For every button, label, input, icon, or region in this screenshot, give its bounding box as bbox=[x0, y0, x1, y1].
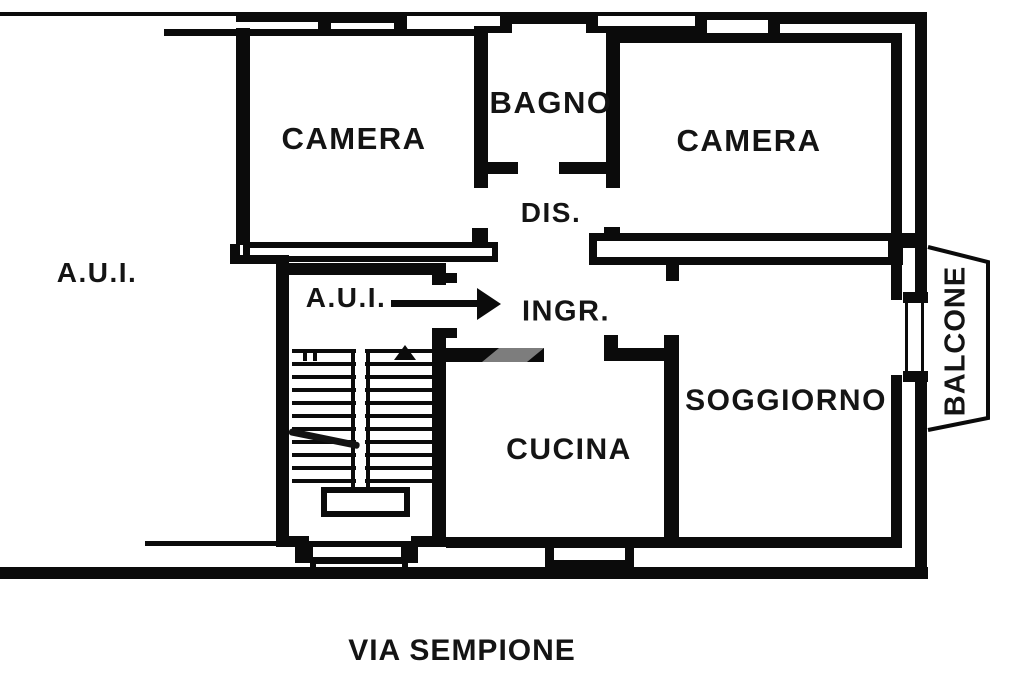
window-bagno bbox=[500, 16, 598, 24]
wall-top-seg bbox=[590, 26, 698, 33]
wall-stair-landing-north bbox=[276, 263, 446, 275]
wall-ingresso-west bbox=[432, 328, 446, 543]
wall-top-thick-left bbox=[236, 12, 330, 22]
room-label-ingresso: INGR. bbox=[522, 296, 610, 329]
wall-stair-west bbox=[276, 255, 289, 543]
room-label-cucina: CUCINA bbox=[506, 433, 632, 467]
window-bagno-jamb bbox=[500, 16, 512, 33]
wall-inner-east-lower bbox=[891, 375, 902, 548]
stairs-up-arrow-icon bbox=[394, 345, 416, 360]
street-line bbox=[0, 567, 928, 579]
balcony-door-frame bbox=[905, 303, 908, 371]
stair-break-line bbox=[288, 428, 360, 449]
door-jamb-soggiorno bbox=[666, 263, 679, 281]
balcony-door-frame bbox=[921, 303, 924, 371]
wall-cucina-soggiorno bbox=[664, 335, 679, 541]
wall-bagno-south bbox=[559, 162, 607, 174]
wall-camera-left-west bbox=[236, 28, 250, 245]
window-camera-left-jamb bbox=[394, 13, 407, 36]
room-label-dis: DIS. bbox=[521, 197, 581, 229]
door-jamb-ingresso bbox=[432, 328, 457, 338]
room-label-camera-right: CAMERA bbox=[676, 123, 821, 159]
window-camera-left bbox=[324, 15, 404, 23]
street-label: VIA SEMPIONE bbox=[348, 634, 576, 668]
stair-stringer bbox=[351, 349, 355, 487]
entry-arrow-icon bbox=[477, 288, 501, 320]
wall-core bbox=[597, 241, 888, 257]
wall-ingresso-south bbox=[446, 348, 484, 362]
stair-label-aui: A.U.I. bbox=[306, 282, 387, 314]
door-wedge-icon bbox=[527, 348, 544, 362]
stair-stringer bbox=[366, 349, 370, 487]
floor-plan: CAMERA BAGNO CAMERA DIS. A.U.I. A.U.I. I… bbox=[0, 0, 1024, 682]
room-label-bagno: BAGNO bbox=[490, 85, 613, 121]
wall-top-thick-right bbox=[775, 12, 927, 24]
boundary-line-left bbox=[145, 541, 276, 546]
stair-landing-core bbox=[327, 493, 404, 511]
entry-porch-core bbox=[313, 547, 401, 557]
stair-tick bbox=[303, 349, 307, 361]
stair-tick bbox=[313, 349, 317, 361]
room-label-camera-left: CAMERA bbox=[281, 121, 426, 157]
window-camera-right-jamb bbox=[695, 12, 707, 33]
entry-arrow-shaft bbox=[391, 300, 479, 307]
window-bagno-jamb bbox=[586, 16, 598, 33]
wall-step bbox=[230, 255, 277, 264]
area-label-aui: A.U.I. bbox=[57, 257, 138, 289]
room-label-balcone: BALCONE bbox=[940, 266, 973, 416]
window-camera-left-jamb bbox=[318, 13, 331, 36]
entrance-door bbox=[482, 348, 544, 362]
door-jamb-cucina bbox=[604, 335, 618, 348]
wall-unit-south bbox=[446, 537, 902, 548]
stair-stringer-gap bbox=[356, 349, 365, 487]
window-cucina-core bbox=[554, 548, 625, 560]
wall-bagno-south bbox=[474, 162, 518, 174]
wall-camera-right-north bbox=[618, 33, 892, 43]
door-wedge-icon bbox=[482, 348, 499, 362]
room-label-soggiorno: SOGGIORNO bbox=[685, 384, 887, 418]
door-jamb-ingresso bbox=[432, 273, 457, 283]
